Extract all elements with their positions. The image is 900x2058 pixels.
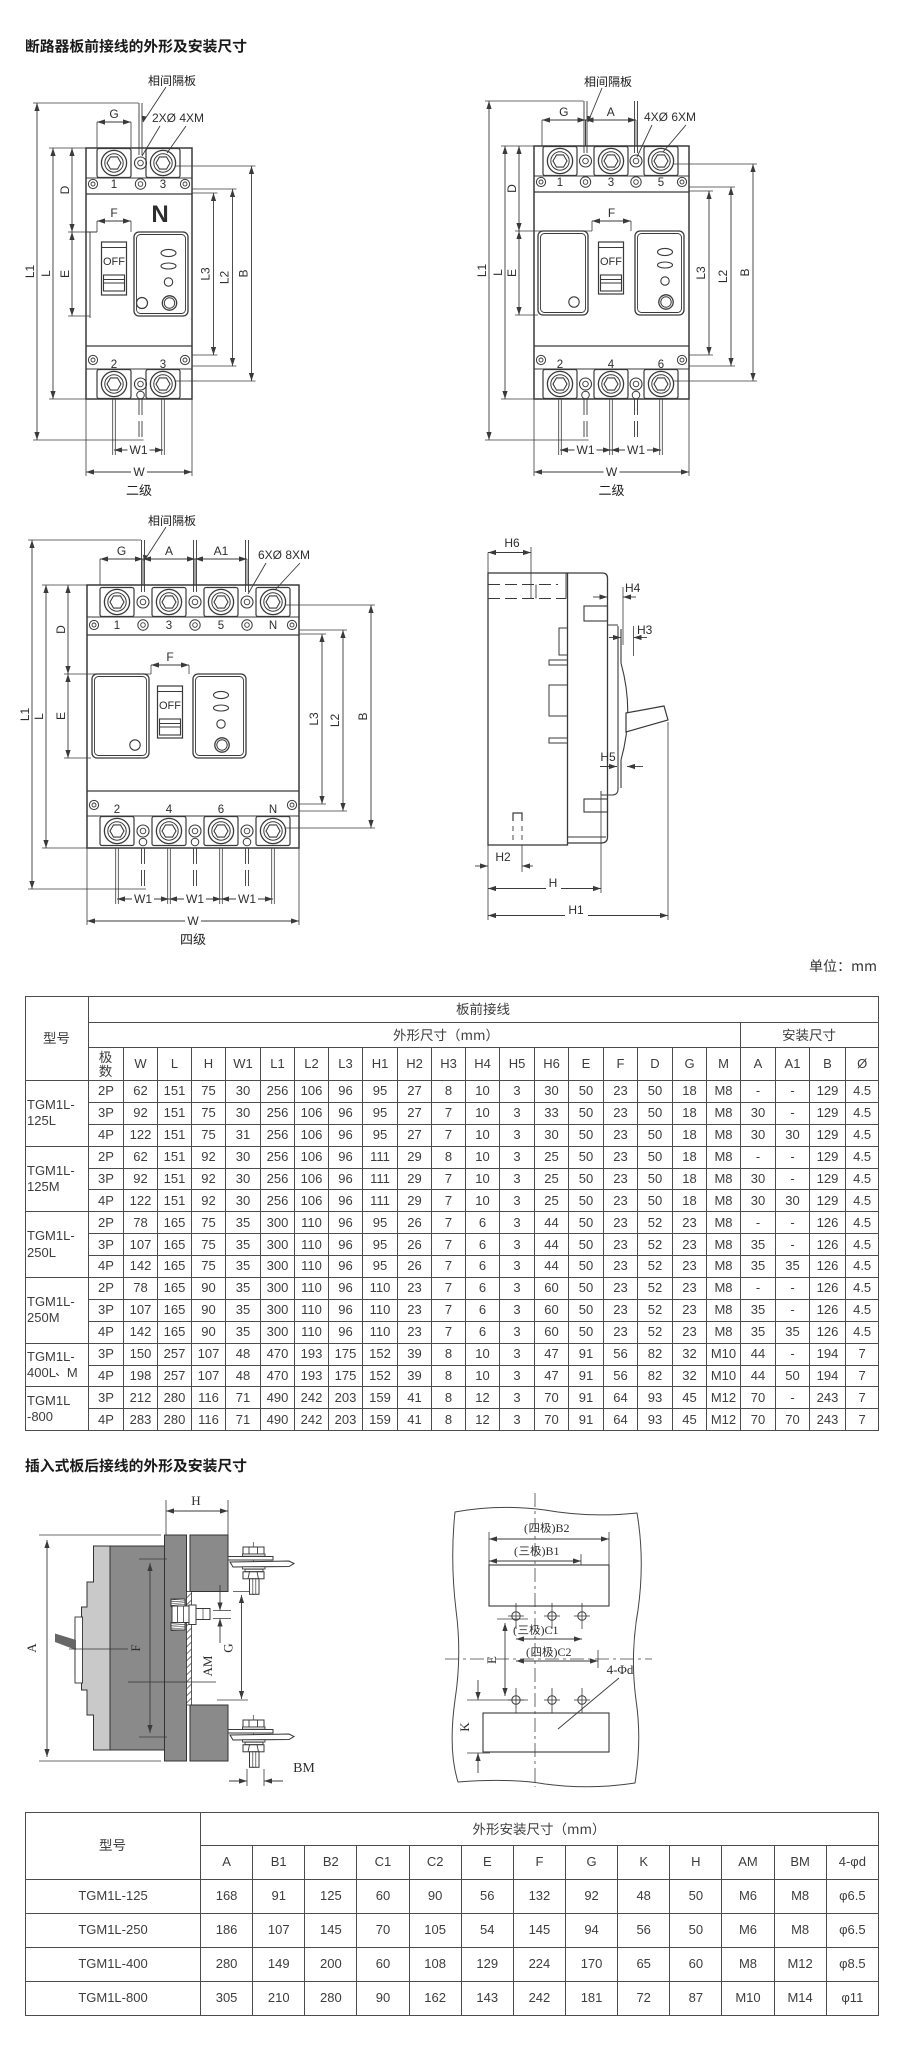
svg-text:L1: L1 [475, 264, 489, 278]
svg-text:D: D [54, 625, 68, 634]
svg-text:)B1: )B1 [542, 1544, 560, 1558]
svg-text:W1: W1 [186, 892, 204, 906]
svg-text:)B2: )B2 [552, 1521, 570, 1535]
svg-text:L: L [39, 270, 53, 277]
svg-text:H: H [549, 876, 558, 890]
svg-text:E: E [58, 270, 72, 278]
svg-text:A: A [165, 544, 173, 558]
svg-text:(: ( [526, 1645, 530, 1659]
svg-text:F: F [110, 206, 117, 220]
svg-text:4XØ 6XM: 4XØ 6XM [644, 110, 696, 124]
svg-text:4-Φd: 4-Φd [607, 1662, 634, 1677]
svg-text:F: F [608, 206, 615, 220]
svg-text:L2: L2 [218, 271, 232, 285]
svg-text:B: B [356, 712, 370, 720]
svg-text:5: 5 [658, 177, 664, 189]
svg-text:)C1: )C1 [541, 1623, 559, 1637]
svg-text:F: F [128, 1644, 143, 1651]
svg-text:H1: H1 [568, 903, 584, 917]
svg-text:2: 2 [557, 359, 563, 371]
svg-text:OFF: OFF [600, 256, 622, 268]
svg-text:AM: AM [200, 1655, 215, 1676]
svg-text:L1: L1 [23, 265, 37, 279]
svg-text:OFF: OFF [103, 256, 125, 268]
svg-text:W1: W1 [627, 443, 645, 457]
svg-text:W1: W1 [130, 443, 148, 457]
svg-text:W1: W1 [577, 443, 595, 457]
svg-text:K: K [457, 1722, 472, 1732]
svg-text:L: L [491, 269, 505, 276]
svg-text:N: N [269, 804, 277, 816]
svg-text:N: N [269, 620, 277, 632]
svg-text:H5: H5 [600, 750, 616, 764]
svg-text:W: W [187, 914, 199, 928]
svg-text:L2: L2 [716, 270, 730, 284]
svg-text:D: D [505, 184, 519, 193]
svg-text:L3: L3 [307, 712, 321, 726]
svg-text:L2: L2 [328, 714, 342, 728]
svg-text:3: 3 [160, 359, 166, 371]
svg-text:D: D [58, 185, 72, 194]
svg-text:3: 3 [608, 177, 614, 189]
svg-text:6: 6 [218, 804, 224, 816]
svg-text:H3: H3 [637, 623, 653, 637]
svg-text:)C2: )C2 [554, 1645, 572, 1659]
svg-text:5: 5 [218, 620, 224, 632]
svg-text:L1: L1 [18, 708, 32, 722]
svg-text:H4: H4 [625, 581, 641, 595]
svg-text:1: 1 [111, 179, 117, 191]
svg-text:6XØ 8XM: 6XØ 8XM [258, 548, 310, 562]
svg-text:G: G [117, 544, 126, 558]
svg-text:G: G [109, 107, 118, 121]
svg-text:E: E [484, 1656, 499, 1664]
svg-text:W: W [133, 465, 145, 479]
svg-text:L: L [32, 713, 46, 720]
svg-text:H: H [191, 1493, 200, 1508]
svg-text:N: N [151, 201, 168, 228]
svg-text:2: 2 [114, 804, 120, 816]
svg-text:6: 6 [658, 359, 664, 371]
svg-text:L3: L3 [199, 267, 213, 281]
svg-text:1: 1 [114, 620, 120, 632]
svg-text:(: ( [514, 1544, 518, 1558]
svg-text:B: B [237, 269, 251, 277]
svg-text:G: G [221, 1643, 236, 1652]
svg-text:H2: H2 [495, 850, 511, 864]
svg-text:OFF: OFF [159, 700, 181, 712]
svg-text:E: E [54, 712, 68, 720]
svg-text:1: 1 [557, 177, 563, 189]
svg-text:A: A [24, 1643, 39, 1653]
svg-text:F: F [166, 650, 173, 664]
svg-text:(: ( [513, 1623, 517, 1637]
svg-text:A: A [607, 105, 615, 119]
svg-text:H6: H6 [504, 536, 520, 550]
svg-text:A1: A1 [214, 544, 229, 558]
svg-text:G: G [559, 105, 568, 119]
svg-text:E: E [505, 269, 519, 277]
svg-text:B: B [738, 268, 752, 276]
svg-text:4: 4 [166, 804, 173, 816]
svg-text:(: ( [524, 1521, 528, 1535]
svg-text:3: 3 [160, 179, 166, 191]
svg-text:3: 3 [166, 620, 172, 632]
svg-text:W1: W1 [238, 892, 256, 906]
svg-text:4: 4 [608, 359, 615, 371]
svg-text:W1: W1 [134, 892, 152, 906]
svg-text:BM: BM [293, 1761, 315, 1776]
svg-text:L3: L3 [694, 266, 708, 280]
svg-text:2: 2 [111, 359, 117, 371]
svg-text:2XØ 4XM: 2XØ 4XM [152, 111, 204, 125]
svg-text:W: W [606, 465, 618, 479]
